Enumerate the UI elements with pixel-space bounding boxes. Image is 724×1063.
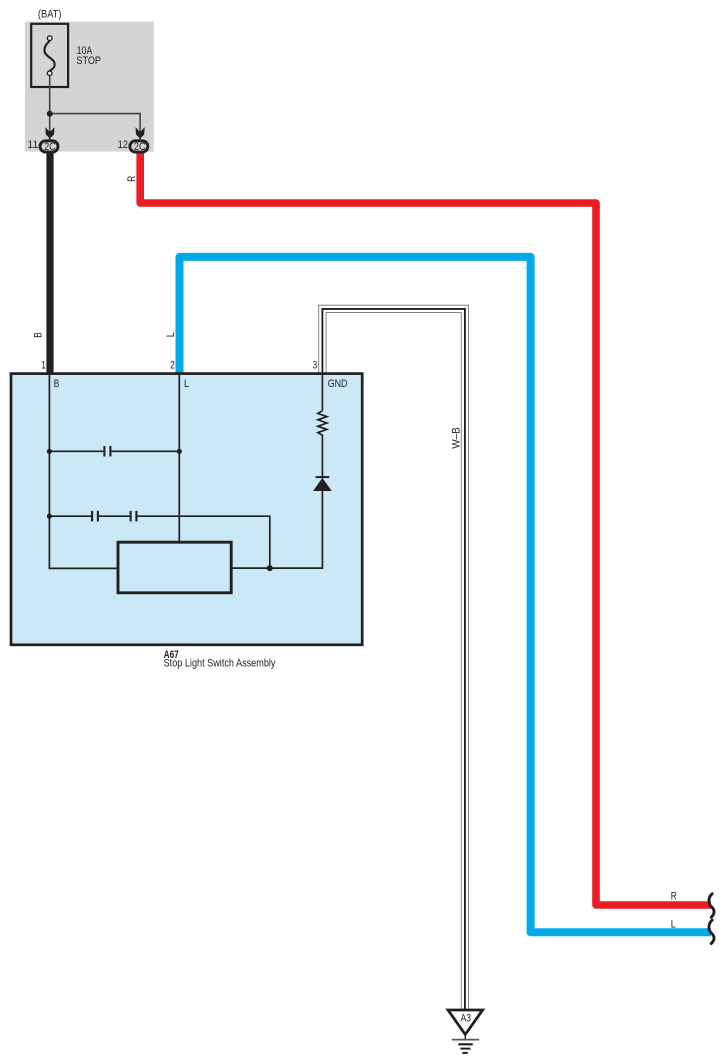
svg-text:R: R xyxy=(126,176,138,182)
svg-text:R: R xyxy=(671,891,677,903)
svg-text:2C: 2C xyxy=(134,141,146,153)
svg-text:12: 12 xyxy=(118,139,128,151)
svg-text:A3: A3 xyxy=(461,1013,472,1025)
svg-text:2: 2 xyxy=(170,360,175,372)
svg-text:2C: 2C xyxy=(44,141,56,153)
svg-text:1: 1 xyxy=(41,360,46,372)
svg-text:W–B: W–B xyxy=(450,427,462,449)
svg-text:L: L xyxy=(184,378,189,390)
svg-text:(BAT): (BAT) xyxy=(38,9,62,21)
svg-text:L: L xyxy=(165,332,177,337)
svg-text:B: B xyxy=(54,378,60,390)
svg-text:Stop Light Switch Assembly: Stop Light Switch Assembly xyxy=(164,658,276,670)
svg-text:GND: GND xyxy=(328,378,348,390)
svg-text:B: B xyxy=(33,332,45,338)
svg-text:STOP: STOP xyxy=(76,55,101,67)
svg-text:L: L xyxy=(671,918,676,930)
svg-text:3: 3 xyxy=(313,360,318,372)
svg-text:11: 11 xyxy=(27,139,38,151)
